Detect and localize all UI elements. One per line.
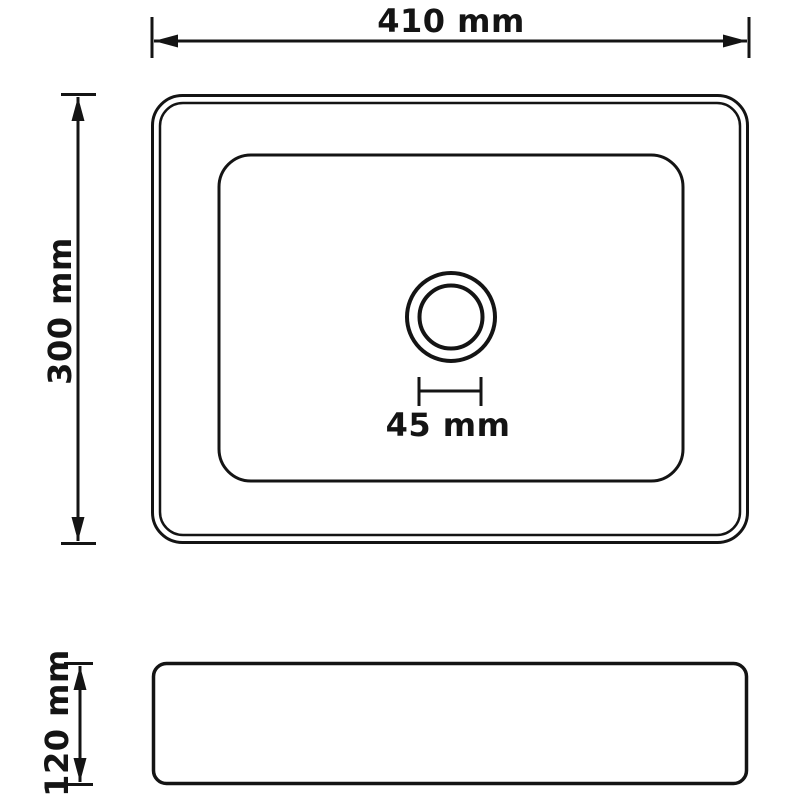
drain-dimension-label: 45 mm (298, 407, 598, 443)
sink-top-view (153, 96, 748, 543)
depth-dimension-label: 120 mm (39, 573, 75, 800)
width-dimension-arrow-right (723, 35, 747, 48)
sink-side-profile (154, 664, 747, 784)
width-dimension-arrow-left (154, 35, 178, 48)
height-dimension-label: 300 mm (42, 161, 78, 461)
technical-drawing-canvas: 410 mm 300 mm 45 mm 120 mm (0, 0, 800, 800)
height-dimension-arrow-top (72, 97, 85, 121)
height-dimension-arrow-bottom (72, 517, 85, 541)
drawing-svg (0, 0, 800, 800)
drain-dimension (419, 377, 481, 406)
width-dimension-label: 410 mm (301, 3, 601, 39)
sink-outer-edge (153, 96, 748, 543)
sink-side-view (154, 664, 747, 784)
sink-rim-line (160, 103, 740, 535)
drain-inner-circle (420, 286, 483, 349)
